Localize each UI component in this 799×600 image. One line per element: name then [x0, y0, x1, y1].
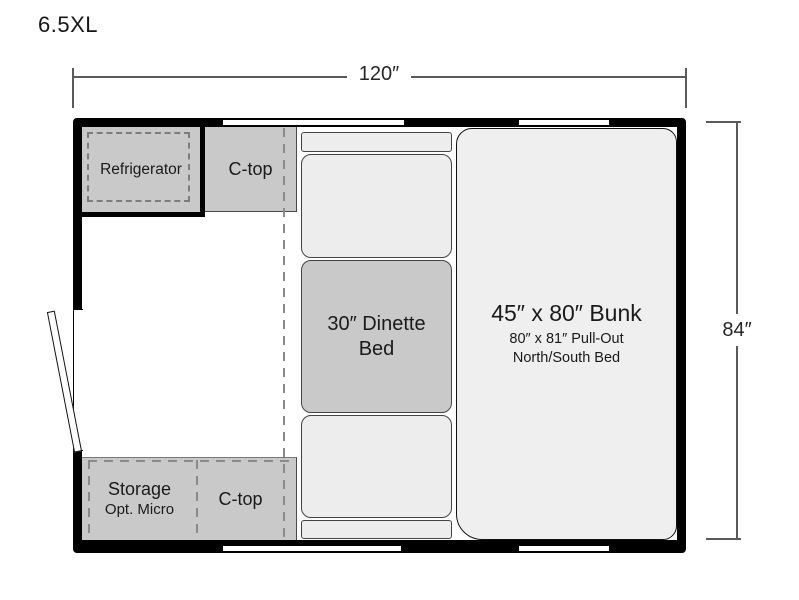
- refrigerator: Refrigerator: [82, 127, 205, 217]
- bunk-subtitle-2: North/South Bed: [513, 349, 620, 368]
- width-dimension-labelwrap: 120″: [72, 63, 686, 86]
- storage-cabinet: Storage Opt. Micro C-top: [82, 457, 297, 540]
- height-dimension-label: 84″: [720, 314, 753, 346]
- dinette-seat-bottom: [301, 415, 452, 518]
- bunk-title: 45″ x 80″ Bunk: [491, 300, 642, 327]
- refrigerator-label: Refrigerator: [100, 161, 182, 179]
- dinette-label-line2: Bed: [327, 337, 425, 362]
- overhead-cabinet-dashed-line: [283, 128, 285, 538]
- model-title: 6.5XL: [38, 12, 98, 38]
- counter-top-upper-label: C-top: [228, 159, 272, 180]
- storage-opt-micro-label: Opt. Micro: [105, 501, 174, 519]
- height-dimension-labelwrap: 84″: [708, 319, 766, 342]
- window-bottom-right: [518, 545, 610, 552]
- dinette-foot-strip: [301, 520, 452, 539]
- window-top-left: [222, 119, 405, 126]
- dinette-table-bed: 30″ Dinette Bed: [301, 260, 452, 413]
- storage-section: Storage Opt. Micro: [82, 458, 197, 540]
- bunk-subtitle-1: 80″ x 81″ Pull-Out: [509, 330, 623, 349]
- floorplan-canvas: 6.5XL 120″ 84″ Refrigerator C-top 30″ Di…: [0, 0, 799, 600]
- window-bottom-left: [222, 545, 402, 552]
- counter-top-lower: C-top: [197, 458, 284, 540]
- dinette-head-strip: [301, 132, 452, 152]
- storage-label: Storage: [108, 479, 171, 501]
- counter-top-lower-label: C-top: [218, 489, 262, 510]
- dinette-label: 30″ Dinette Bed: [327, 312, 425, 362]
- dinette-seat-top: [301, 154, 452, 258]
- width-dimension-label: 120″: [347, 63, 411, 85]
- window-top-right: [518, 119, 610, 126]
- dinette-label-line1: 30″ Dinette: [327, 312, 425, 337]
- bunk-bed: 45″ x 80″ Bunk 80″ x 81″ Pull-Out North/…: [456, 128, 677, 540]
